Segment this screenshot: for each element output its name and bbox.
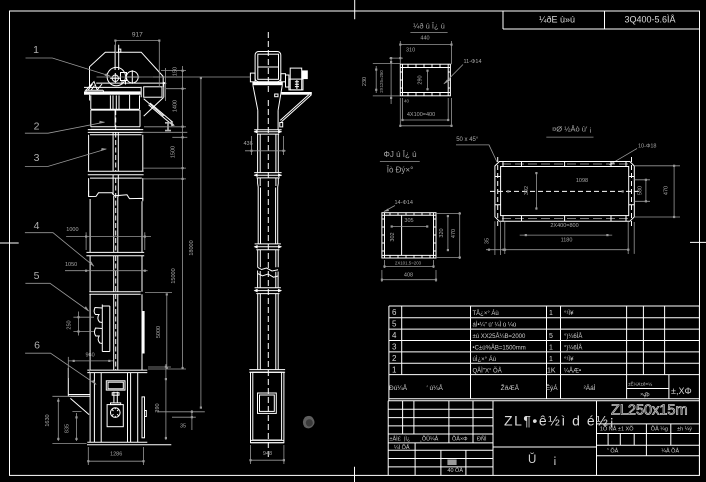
svg-text:¼Å ÕÅ: ¼Å ÕÅ [661,447,679,454]
svg-text:40 ÕÅ: 40 ÕÅ [447,467,463,474]
svg-text:948: 948 [263,451,272,457]
svg-text:|Ì¿: |Ì¿ [404,436,410,443]
svg-text:3: 3 [34,152,40,164]
svg-text:4: 4 [392,331,397,340]
svg-text:250: 250 [67,320,73,329]
svg-text:150: 150 [173,67,179,76]
svg-text:2X125=250: 2X125=250 [379,70,384,93]
svg-text:6: 6 [34,340,40,352]
svg-text:˜ ÕÅ: ˜ ÕÅ [606,447,619,454]
svg-text:2X400=800: 2X400=800 [550,223,578,229]
svg-text:ÕÅ×Φ: ÕÅ×Φ [452,436,468,443]
svg-text:±Ê¼X±ê×¼: ±Ê¼X±ê×¼ [628,379,652,386]
svg-text:¼ðE ù»ú: ¼ðE ù»ú [539,14,575,24]
svg-text:¼ÅÆ•: ¼ÅÆ• [564,368,581,375]
svg-text:5000: 5000 [156,326,162,338]
svg-text:úÌ¿×° Áù: úÌ¿×° Áù [473,356,497,363]
svg-text:302: 302 [390,232,396,241]
svg-text:1: 1 [549,345,553,352]
svg-text:1Õ ÑÅ ±1 XÕ: 1Õ ÑÅ ±1 XÕ [600,426,634,433]
svg-text:5: 5 [34,270,40,282]
svg-text:835: 835 [65,424,71,433]
svg-text:1286: 1286 [110,451,122,457]
svg-text:5: 5 [392,320,397,329]
svg-text:ŽðÆÅ: ŽðÆÅ [501,383,520,392]
svg-text:2: 2 [392,354,397,363]
svg-text:±h ¼ý: ±h ¼ý [677,427,692,433]
svg-text:°)¼6ÌÅ: °)¼6ÌÅ [564,345,582,352]
svg-text:1180: 1180 [561,237,573,243]
svg-text:3: 3 [392,343,397,352]
svg-text:230: 230 [362,77,368,86]
svg-text:917: 917 [132,32,143,39]
svg-text:18000: 18000 [189,240,195,255]
svg-text:960: 960 [86,353,95,359]
svg-text:4: 4 [34,220,40,232]
svg-text:11-Φ14: 11-Φ14 [464,59,482,65]
svg-text:×ؼþ: ×ؼþ [640,392,650,398]
svg-text:²ÄáÌ: ²ÄáÌ [584,383,596,392]
svg-text:2: 2 [34,121,40,133]
svg-text:392: 392 [524,186,530,195]
svg-text:¼ð ú Ī¿ ú: ¼ð ú Ī¿ ú [413,22,445,31]
svg-text:Īò Ðý×°: Īò Ðý×° [387,166,414,175]
svg-text:470: 470 [451,229,457,238]
svg-text:14-Φ14: 14-Φ14 [395,200,413,206]
svg-text:1K: 1K [547,368,556,375]
svg-text:•C±ú%ÅB=1500mm: •C±ú%ÅB=1500mm [473,345,526,352]
svg-text:1: 1 [549,310,553,317]
svg-text:1: 1 [392,366,397,375]
svg-text:390: 390 [155,403,161,412]
svg-text:1098: 1098 [576,178,588,184]
svg-text:ZL¶•ê½ì d é½¡: ZL¶•ê½ì d é½¡ [504,413,614,429]
svg-text:40: 40 [404,99,409,104]
svg-text:5: 5 [549,333,553,340]
svg-text:6: 6 [392,308,397,317]
svg-text:¡: ¡ [553,454,557,466]
svg-text:áÌ•¼" ú′ ¼Ì ù ¼ú: áÌ•¼" ú′ ¼Ì ù ¼ú [473,322,517,329]
svg-text:1050: 1050 [65,262,77,268]
svg-text:′ ú¼Å: ′ ú¼Å [427,383,444,392]
svg-text:470: 470 [664,186,670,195]
svg-text:¼Ì ÕÅ: ¼Ì ÕÅ [394,444,410,451]
svg-text:±ÅÌ£: ±ÅÌ£ [390,436,401,443]
svg-text:1: 1 [33,44,39,56]
svg-text:±ú XX25Å¼B=2000: ±ú XX25Å¼B=2000 [473,333,526,340]
svg-text:15000: 15000 [171,268,177,283]
svg-text:408: 408 [404,273,413,279]
svg-text:3Q400-5.6ÌÅ: 3Q400-5.6ÌÅ [624,14,675,24]
svg-text:440: 440 [420,36,429,42]
svg-text:±,XΦ: ±,XΦ [671,386,692,396]
svg-text:1500: 1500 [171,146,177,158]
svg-text:580: 580 [638,186,644,195]
svg-text:TÅ¿×° Áù: TÅ¿×° Áù [473,310,499,317]
svg-text:310: 310 [406,48,415,54]
svg-text:320: 320 [439,228,445,237]
svg-text:ZL250x15m: ZL250x15m [611,403,688,419]
svg-text:°)¼6ÌÅ: °)¼6ÌÅ [564,333,582,340]
svg-text:Ðú¼Å: Ðú¼Å [389,383,408,392]
svg-text:4X100=400: 4X100=400 [407,112,435,118]
svg-text:°¹Ì¥: °¹Ì¥ [564,310,574,317]
svg-text:¸ÕŬ¼Å: ¸ÕŬ¼Å [420,436,439,443]
svg-text:50 x 45°: 50 x 45° [456,137,479,143]
svg-text:35: 35 [485,238,491,244]
svg-text:ÕÅ ¼g: ÕÅ ¼g [651,426,668,433]
svg-text:QÅÌ"X° ÕÅ: QÅÌ"X° ÕÅ [473,368,502,375]
svg-text:¤Ø ½Åò ù′ ¡: ¤Ø ½Åò ù′ ¡ [552,125,592,134]
svg-text:10-Φ18: 10-Φ18 [638,143,656,149]
svg-text:1400: 1400 [173,100,179,112]
svg-text:ΦJ ú Ī¿ ú: ΦJ ú Ī¿ ú [383,150,416,159]
svg-text:1: 1 [549,356,553,363]
svg-text:Ŭ: Ŭ [528,453,536,466]
svg-text:290: 290 [418,75,424,84]
svg-text:°¹Ì¥: °¹Ì¥ [564,356,574,363]
svg-text:ÐÑÌ: ÐÑÌ [477,436,487,443]
svg-text:305: 305 [404,218,413,224]
svg-text:2X101.5=203: 2X101.5=203 [395,260,422,265]
svg-text:35: 35 [180,424,186,430]
svg-text:1000: 1000 [66,227,78,233]
svg-text:ÊýÁ: ÊýÁ [546,383,559,392]
svg-text:1630: 1630 [45,414,51,426]
